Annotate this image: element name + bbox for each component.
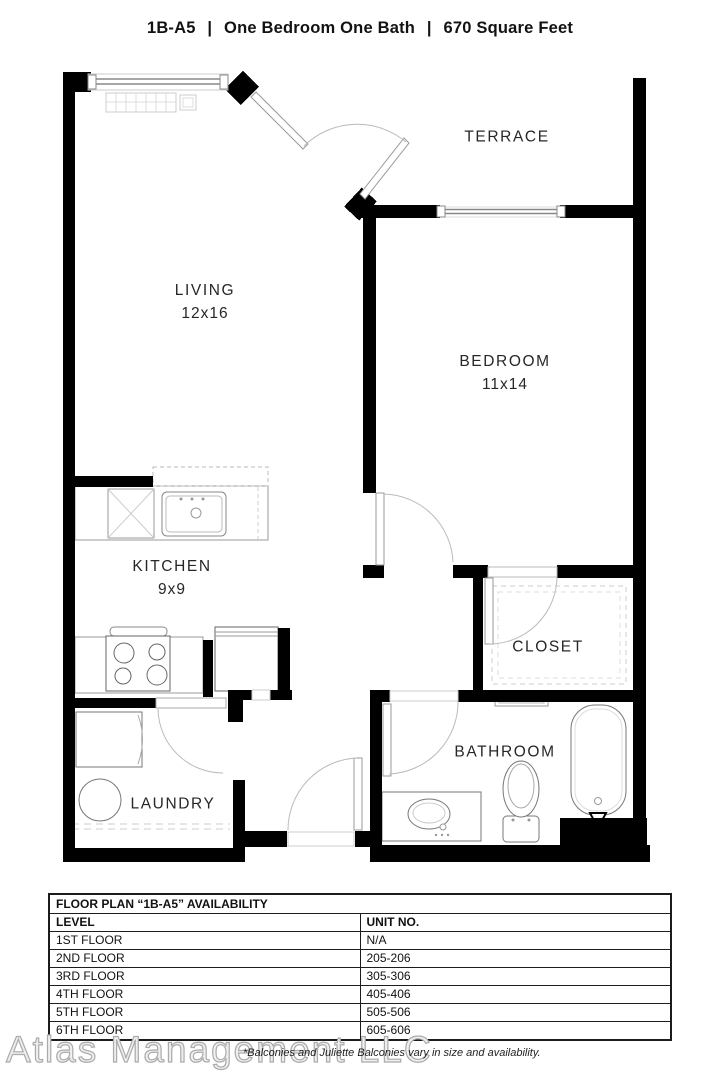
terrace-door: [251, 92, 409, 199]
room-label-terrace: TERRACE: [464, 126, 549, 149]
unit-cell: 405-406: [360, 986, 671, 1004]
unit-cell: 205-206: [360, 950, 671, 968]
room-label-bathroom: BATHROOM: [454, 741, 555, 764]
table-row: 5TH FLOOR 505-506: [49, 1004, 671, 1022]
room-label-laundry: LAUNDRY: [131, 793, 216, 816]
unit-cell: 305-306: [360, 968, 671, 986]
room-label-living: LIVING 12x16: [175, 279, 235, 325]
floor-plan-drawing: [0, 0, 720, 880]
room-label-bedroom: BEDROOM 11x14: [459, 350, 550, 396]
window-hvac-unit: [106, 93, 196, 112]
table-row: 4TH FLOOR 405-406: [49, 986, 671, 1004]
room-label-closet: CLOSET: [512, 636, 584, 659]
floor-plan-page: 1B-A5 | One Bedroom One Bath | 670 Squar…: [0, 0, 720, 1080]
stove: [106, 627, 170, 691]
unit-cell: 505-506: [360, 1004, 671, 1022]
bathtub: [571, 705, 626, 828]
bedroom-door: [376, 493, 453, 565]
table-header-row: LEVEL UNIT NO.: [49, 914, 671, 932]
laundry-door: [156, 698, 226, 773]
table-row: 1ST FLOOR N/A: [49, 932, 671, 950]
living-window: [88, 74, 228, 90]
entry-door: [288, 758, 362, 846]
availability-table: FLOOR PLAN “1B-A5” AVAILABILITY LEVEL UN…: [48, 893, 672, 1041]
column-header-level: LEVEL: [49, 914, 360, 932]
laundry-basin: [79, 779, 121, 821]
toilet: [503, 761, 539, 842]
level-cell: 3RD FLOOR: [49, 968, 360, 986]
table-row: 3RD FLOOR 305-306: [49, 968, 671, 986]
walls: [63, 72, 650, 862]
balcony-disclaimer: *Balconies and Juliette Balconies vary i…: [243, 1047, 541, 1059]
table-row: 2ND FLOOR 205-206: [49, 950, 671, 968]
bedroom-window: [437, 206, 565, 217]
kitchen-sink: [162, 492, 226, 536]
bathroom-door: [383, 691, 458, 776]
table-title-row: FLOOR PLAN “1B-A5” AVAILABILITY: [49, 894, 671, 914]
vanity-sink: [382, 792, 481, 841]
level-cell: 1ST FLOOR: [49, 932, 360, 950]
hall-opening: [252, 690, 270, 700]
level-cell: 2ND FLOOR: [49, 950, 360, 968]
room-label-kitchen: KITCHEN 9x9: [132, 555, 211, 601]
dishwasher: [108, 489, 154, 538]
table-title: FLOOR PLAN “1B-A5” AVAILABILITY: [49, 894, 671, 914]
unit-cell: N/A: [360, 932, 671, 950]
level-cell: 4TH FLOOR: [49, 986, 360, 1004]
washer: [76, 712, 143, 767]
column-header-unit: UNIT NO.: [360, 914, 671, 932]
closet-door: [485, 567, 557, 644]
level-cell: 5TH FLOOR: [49, 1004, 360, 1022]
refrigerator: [215, 627, 278, 691]
